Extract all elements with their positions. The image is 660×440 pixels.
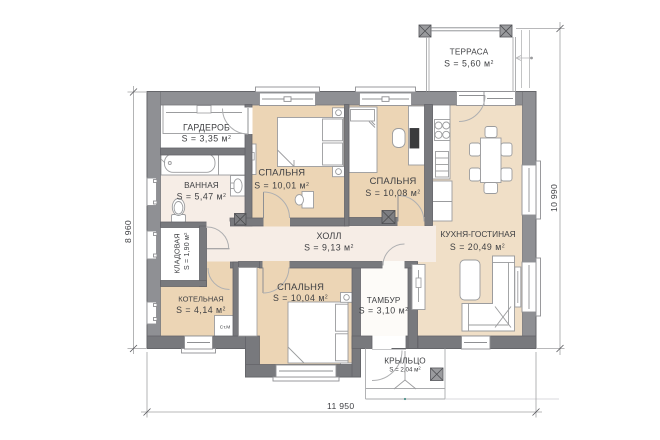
svg-text:S = 10,01 м2: S = 10,01 м2 (254, 181, 309, 191)
svg-text:КОТЕЛЬНАЯ: КОТЕЛЬНАЯ (178, 295, 223, 304)
svg-text:S = 2,04 м2: S = 2,04 м2 (389, 366, 421, 374)
svg-text:ТЕРРАСА: ТЕРРАСА (450, 48, 489, 57)
svg-text:S = 4,14 м2: S = 4,14 м2 (176, 305, 226, 315)
svg-text:10 990: 10 990 (549, 184, 559, 212)
svg-text:8 960: 8 960 (123, 220, 133, 243)
svg-text:S = 3,35 м2: S = 3,35 м2 (182, 134, 232, 144)
svg-text:S = 10,08 м2: S = 10,08 м2 (365, 188, 420, 198)
svg-text:СПАЛЬНЯ: СПАЛЬНЯ (277, 281, 324, 292)
svg-text:S = 10,04 м2: S = 10,04 м2 (273, 293, 328, 303)
svg-text:S = 9,13 м2: S = 9,13 м2 (304, 243, 354, 253)
svg-text:КЛАДОВАЯ: КЛАДОВАЯ (173, 233, 182, 273)
svg-text:S = 5,60 м2: S = 5,60 м2 (444, 59, 494, 69)
svg-text:ГАРДЕРОБ: ГАРДЕРОБ (183, 123, 230, 133)
svg-text:S = 1,90 м2: S = 1,90 м2 (183, 232, 191, 270)
svg-text:Ст.М: Ст.М (220, 325, 230, 331)
svg-text:КРЫЛЬЦО: КРЫЛЬЦО (384, 357, 426, 366)
svg-text:КУХНЯ-ГОСТИНАЯ: КУХНЯ-ГОСТИНАЯ (440, 229, 515, 239)
svg-text:СПАЛЬНЯ: СПАЛЬНЯ (258, 167, 305, 178)
svg-text:S = 5,47 м2: S = 5,47 м2 (177, 192, 227, 202)
svg-text:ХОЛЛ: ХОЛЛ (316, 231, 341, 241)
svg-text:ВАННАЯ: ВАННАЯ (184, 181, 219, 190)
svg-text:S = 3,10 м2: S = 3,10 м2 (359, 306, 409, 316)
svg-text:СПАЛЬНЯ: СПАЛЬНЯ (370, 175, 417, 186)
svg-text:ТАМБУР: ТАМБУР (367, 296, 401, 305)
svg-text:11 950: 11 950 (327, 401, 354, 411)
svg-text:S = 20,49 м2: S = 20,49 м2 (450, 242, 505, 252)
